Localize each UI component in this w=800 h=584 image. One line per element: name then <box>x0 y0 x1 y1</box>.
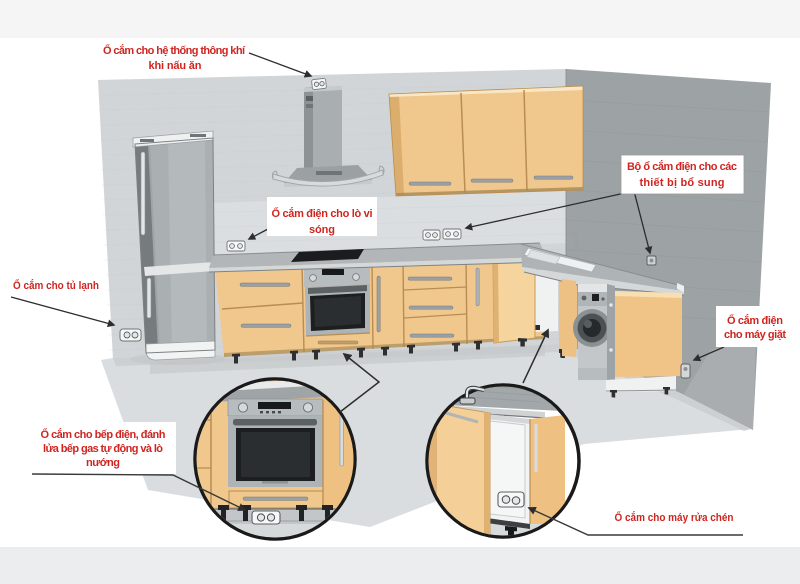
svg-text:thiết bị bổ sung: thiết bị bổ sung <box>640 177 725 189</box>
svg-text:Ổ cắm điện: Ổ cắm điện <box>727 314 783 327</box>
svg-text:lửa bếp gas tự động và lò: lửa bếp gas tự động và lò <box>43 443 163 455</box>
svg-text:nướng: nướng <box>86 457 120 469</box>
svg-text:Ổ cắm cho bếp điện, đánh: Ổ cắm cho bếp điện, đánh <box>41 428 166 441</box>
svg-text:khi nấu ăn: khi nấu ăn <box>149 60 202 72</box>
svg-text:Ổ cắm cho hệ thống thông khí: Ổ cắm cho hệ thống thông khí <box>103 44 246 57</box>
svg-text:Bộ ổ cắm điện cho các: Bộ ổ cắm điện cho các <box>627 160 737 173</box>
svg-text:cho máy giặt: cho máy giặt <box>724 329 786 341</box>
svg-text:Ổ cắm cho máy rửa chén: Ổ cắm cho máy rửa chén <box>615 511 734 524</box>
svg-text:sóng: sóng <box>309 224 335 236</box>
svg-text:Ổ cắm điện cho lò vi: Ổ cắm điện cho lò vi <box>272 207 373 220</box>
svg-text:Ổ cắm cho tủ lạnh: Ổ cắm cho tủ lạnh <box>13 279 99 292</box>
